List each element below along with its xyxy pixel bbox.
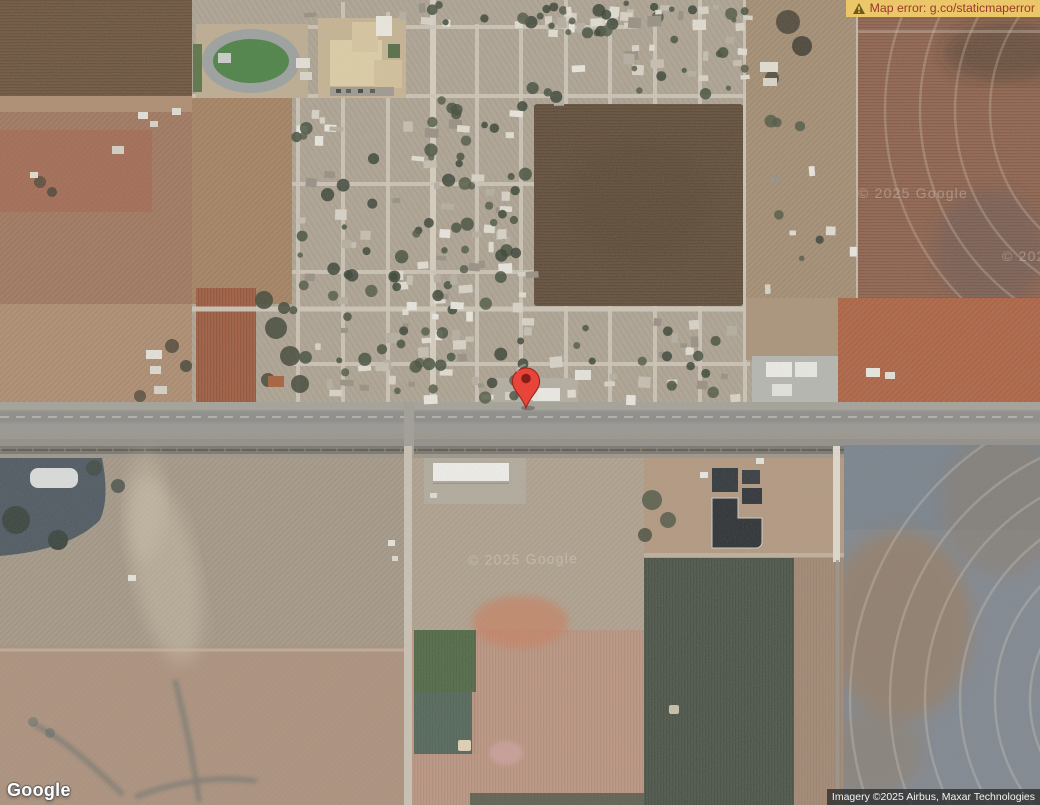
warning-triangle-icon bbox=[853, 3, 865, 14]
map-error-banner: Map error: g.co/staticmaperror bbox=[846, 0, 1040, 17]
map-error-text: Map error: g.co/staticmaperror bbox=[870, 0, 1035, 17]
static-map-image: © 2025 Google © 2025 Google © 2025 Googl… bbox=[0, 0, 1040, 805]
google-logo: Google bbox=[7, 780, 71, 801]
imagery-attribution: Imagery ©2025 Airbus, Maxar Technologies bbox=[827, 789, 1040, 805]
satellite-imagery-layer bbox=[0, 0, 1040, 805]
